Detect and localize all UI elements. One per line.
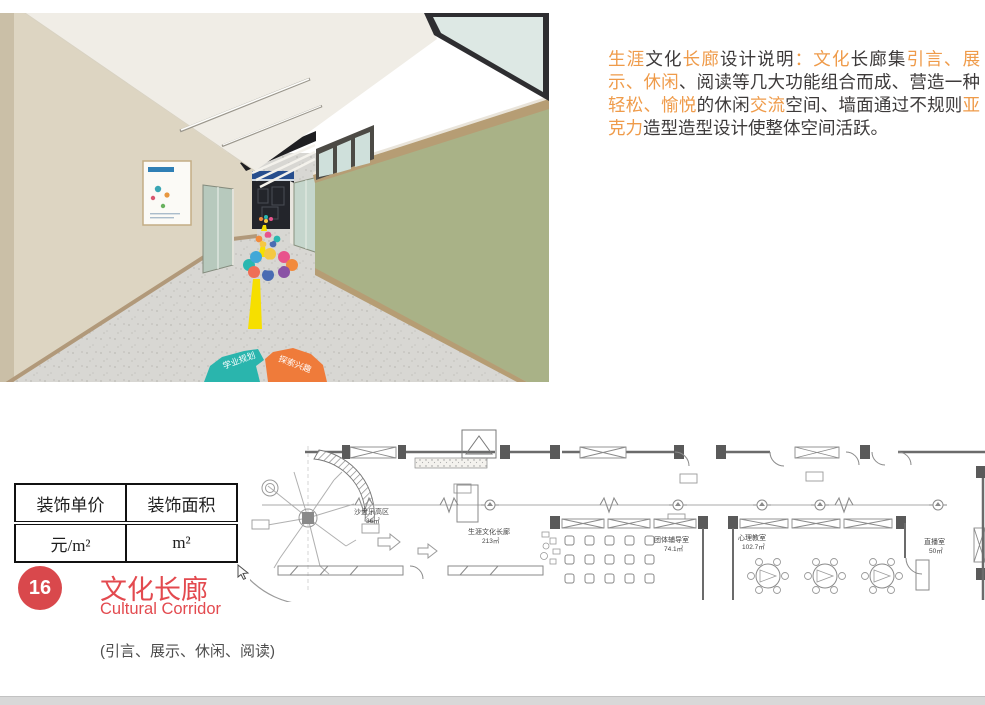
plan-stair-block <box>462 430 496 458</box>
floor-plan-drawing: 沙盘乐高区 36㎡ 生涯文化长廊 213㎡ 团体辅导室 74.1㎡ 心理教室 1… <box>250 428 985 602</box>
description-segment: 交流 <box>750 95 785 115</box>
description-segment: 、阅读等几大功能组合而成、营造一种 <box>679 72 980 92</box>
plan-door-arcs <box>410 452 922 579</box>
area-value-cell: m² <box>126 523 237 562</box>
price-table-header-row: 装饰单价 装饰面积 <box>15 484 237 523</box>
plan-room-labels: 沙盘乐高区 36㎡ 生涯文化长廊 213㎡ 团体辅导室 74.1㎡ 心理教室 1… <box>354 507 945 555</box>
plan-room-label: 心理教室 <box>738 533 766 542</box>
plan-room-area: 74.1㎡ <box>664 544 684 553</box>
plan-planters <box>278 566 543 575</box>
plan-stipple-band <box>415 458 487 468</box>
glass-partition <box>290 177 318 253</box>
plan-room-label: 生涯文化长廊 <box>468 527 510 536</box>
description-segment: 长廊 <box>683 49 720 69</box>
wall-poster <box>143 161 191 225</box>
description-segment: 长廊集 <box>851 49 907 69</box>
glass-door <box>203 185 233 273</box>
description-segment: 设计说明 <box>720 49 795 69</box>
plan-room-area: 102.7㎡ <box>742 542 765 551</box>
description-segment: 文化 <box>645 49 682 69</box>
description-segment: ：文化 <box>795 49 851 69</box>
plan-chair-grid <box>565 536 654 583</box>
description-segment: 的休闲 <box>697 95 750 115</box>
price-header-cell: 装饰单价 <box>15 484 126 523</box>
bottom-bar <box>0 696 985 705</box>
corridor-photo-art: 学业规划 探索兴趣 <box>0 13 549 382</box>
plan-broadcast-desk <box>916 560 929 590</box>
plan-room-area: 36㎡ <box>366 516 380 525</box>
price-value-cell: 元/m² <box>15 523 126 562</box>
mouse-cursor-icon <box>236 564 250 580</box>
plan-room-area: 50㎡ <box>929 546 943 555</box>
price-table-value-row: 元/m² m² <box>15 523 237 562</box>
plan-acrylic-cluster <box>541 532 561 564</box>
price-table: 装饰单价 装饰面积 元/m² m² <box>14 483 238 563</box>
plan-room-label: 沙盘乐高区 <box>354 507 389 516</box>
description-segment: 生涯 <box>608 49 645 69</box>
area-header-cell: 装饰面积 <box>126 484 237 523</box>
corridor-photo: 学业规划 探索兴趣 <box>0 13 549 382</box>
description-segment: 造型造型设计使整体空间活跃。 <box>643 118 888 138</box>
floor-plan: 沙盘乐高区 36㎡ 生涯文化长廊 213㎡ 团体辅导室 74.1㎡ 心理教室 1… <box>250 428 985 602</box>
plan-room-area: 213㎡ <box>482 536 500 545</box>
plan-room-label: 直播室 <box>924 537 945 546</box>
plan-round-tables <box>748 559 903 594</box>
slide-page: 学业规划 探索兴趣 生涯文化长廊设计说明：文化长廊集引言、展示、休闲、阅读等几大… <box>0 0 985 705</box>
plan-room-label: 团体辅导室 <box>654 535 689 544</box>
section-number-badge: 16 <box>18 566 62 610</box>
description-segment: 轻松、愉悦 <box>608 95 697 115</box>
section-subtitle: Cultural Corridor <box>100 600 221 619</box>
top-right-window <box>424 13 549 101</box>
design-description: 生涯文化长廊设计说明：文化长廊集引言、展示、休闲、阅读等几大功能组合而成、营造一… <box>608 48 980 140</box>
section-note: (引言、展示、休闲、阅读) <box>100 640 275 661</box>
description-segment: 空间、墙面通过不规则 <box>785 95 962 115</box>
